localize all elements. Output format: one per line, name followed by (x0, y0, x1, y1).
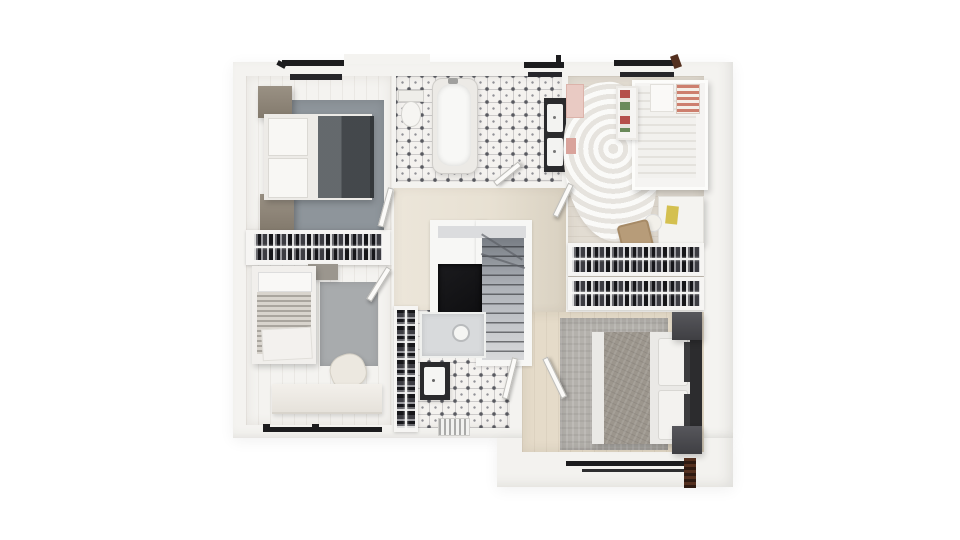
closet-right-lower-bar (572, 292, 700, 294)
closet-left-rail-bar (254, 246, 382, 248)
window-bottom-left-cap2 (312, 424, 319, 432)
master-nightstand-bottom (672, 426, 702, 454)
kids-pink-shelf (566, 84, 584, 118)
kids-white-pillow (650, 84, 674, 112)
bedroom1-footboard (370, 116, 374, 198)
bedroom1-pillow-top (268, 118, 308, 156)
sink-drain-top (553, 116, 556, 119)
dormer-wall-bump (344, 54, 430, 64)
sink-drain-bottom (553, 150, 556, 153)
window-bottom-left-sill (264, 427, 382, 432)
radiator (438, 418, 470, 436)
window-master-sill-inner (582, 469, 686, 472)
bedroom3-bench (272, 384, 382, 414)
bedroom1-dark-duvet (318, 116, 370, 198)
window-top-left-glass (290, 74, 342, 80)
window-top-left-lintel (282, 60, 344, 66)
closet-right-upper-bar (572, 258, 700, 260)
stairwell-void (438, 264, 482, 318)
window-top-right-lintel (614, 60, 678, 66)
kids-yellow-book (665, 205, 679, 224)
bedroom1-pillow-bottom (268, 158, 308, 198)
bedroom3-throw (261, 327, 313, 362)
window-bottom-left-cap1 (263, 424, 270, 432)
bathtub-faucet (448, 78, 458, 84)
bathtub-basin (437, 84, 471, 166)
kids-striped-pillow (676, 84, 700, 114)
window-top-middle-stub (556, 55, 561, 64)
bedroom3-pillow (258, 272, 312, 292)
master-nightstand-top (672, 312, 702, 340)
kids-bookshelf-books (620, 90, 630, 132)
window-top-middle-glass (528, 72, 562, 77)
washbasin-drain (432, 379, 435, 382)
floor-plan-render (0, 0, 960, 540)
master-gray-throw (604, 332, 650, 444)
toilet-bowl (401, 101, 421, 127)
window-top-right-glass (620, 72, 674, 77)
shower-drain (452, 324, 470, 342)
window-master-sill-outer (566, 461, 688, 466)
window-master-wood-jamb (684, 458, 696, 488)
shower-closet-bar (405, 310, 407, 428)
kids-pink-accessory (566, 138, 576, 154)
